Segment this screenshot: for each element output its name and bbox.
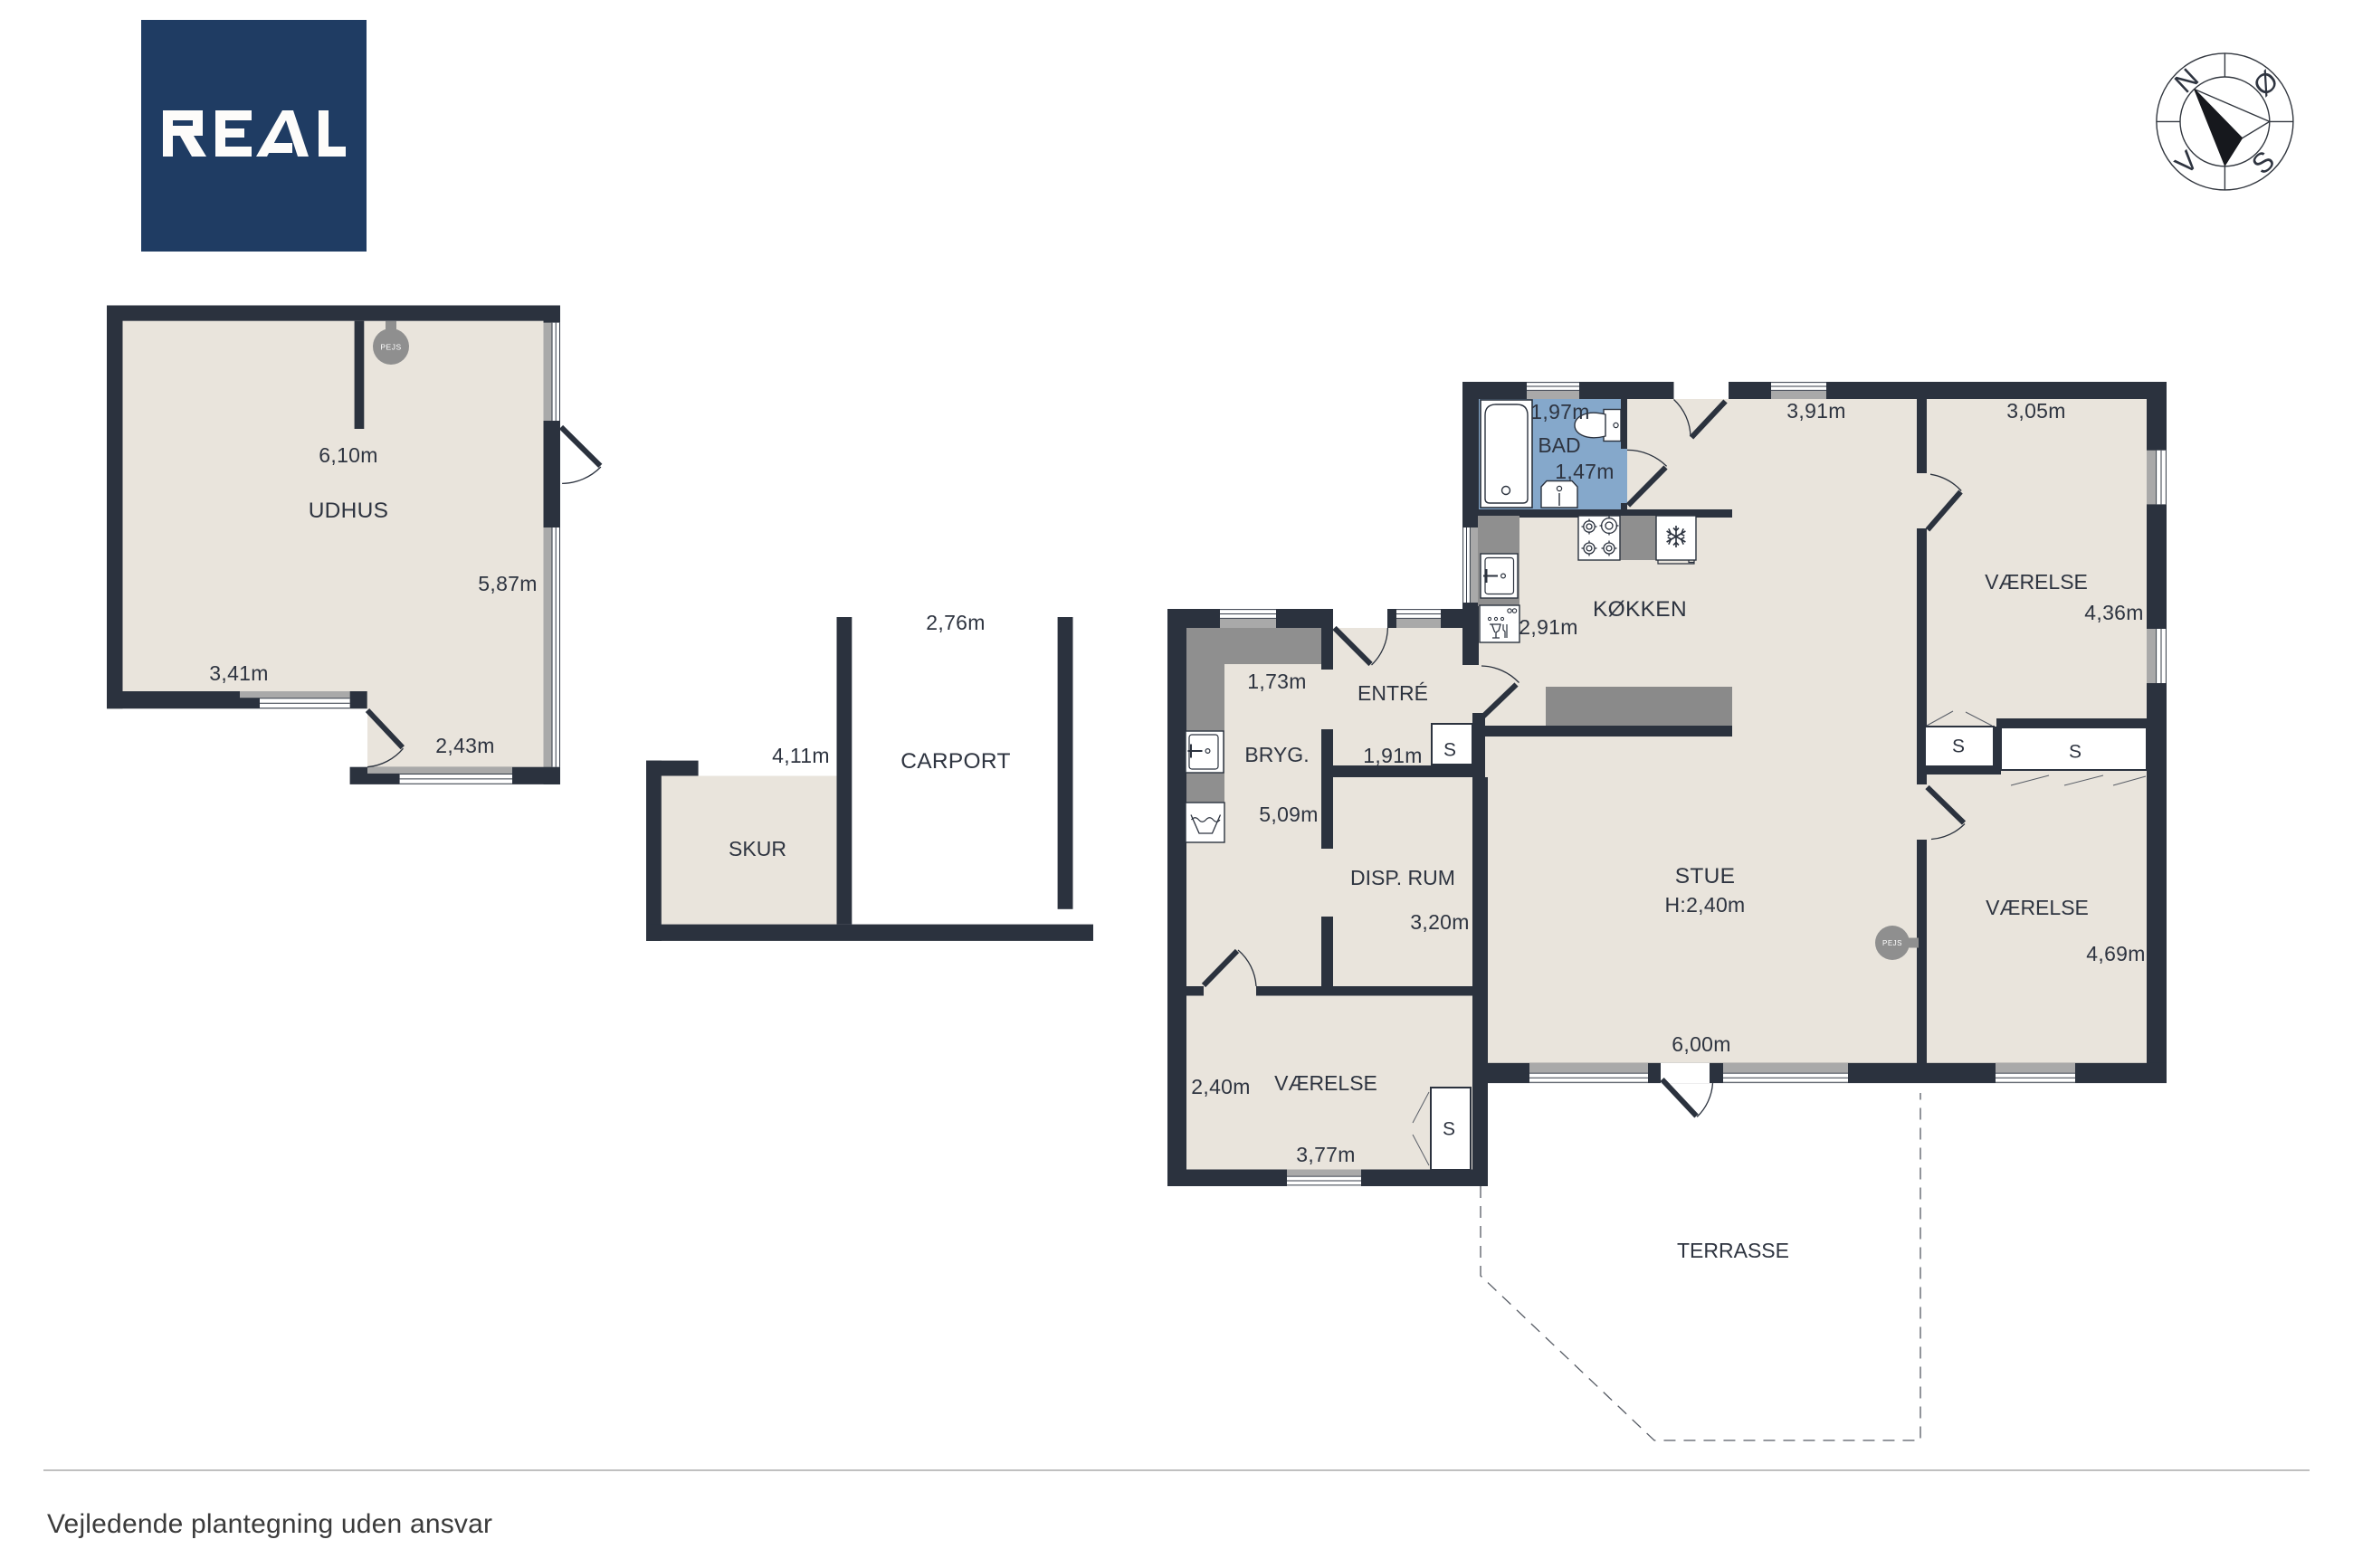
svg-text:4,36m: 4,36m bbox=[2084, 601, 2143, 624]
svg-text:S: S bbox=[1952, 736, 1965, 757]
svg-text:2,43m: 2,43m bbox=[435, 734, 494, 757]
svg-text:BAD: BAD bbox=[1538, 433, 1580, 457]
svg-text:VÆRELSE: VÆRELSE bbox=[1274, 1071, 1377, 1095]
svg-text:KØKKEN: KØKKEN bbox=[1593, 597, 1687, 622]
svg-text:CARPORT: CARPORT bbox=[900, 749, 1010, 774]
svg-text:5,09m: 5,09m bbox=[1259, 803, 1318, 826]
svg-text:BRYG.: BRYG. bbox=[1244, 743, 1309, 766]
svg-text:4,69m: 4,69m bbox=[2086, 942, 2145, 965]
svg-text:STUE: STUE bbox=[1675, 864, 1736, 889]
svg-text:S: S bbox=[2069, 742, 2081, 763]
svg-text:4,11m: 4,11m bbox=[772, 744, 830, 767]
svg-text:3,05m: 3,05m bbox=[2006, 399, 2065, 423]
svg-text:PEJS: PEJS bbox=[1882, 939, 1902, 947]
svg-text:1,47m: 1,47m bbox=[1555, 460, 1614, 483]
svg-text:ENTRÉ: ENTRÉ bbox=[1357, 681, 1428, 705]
svg-text:S: S bbox=[1443, 740, 1456, 761]
svg-text:H:2,40m: H:2,40m bbox=[1664, 893, 1745, 917]
svg-text:DISP. RUM: DISP. RUM bbox=[1350, 866, 1455, 889]
svg-text:2,40m: 2,40m bbox=[1191, 1075, 1250, 1098]
svg-text:1,91m: 1,91m bbox=[1363, 744, 1422, 767]
svg-text:UDHUS: UDHUS bbox=[309, 499, 389, 523]
svg-text:1,97m: 1,97m bbox=[1530, 400, 1589, 423]
svg-text:2,91m: 2,91m bbox=[1519, 615, 1577, 639]
svg-text:6,10m: 6,10m bbox=[319, 443, 377, 467]
svg-text:SKUR: SKUR bbox=[729, 837, 786, 860]
svg-text:Vejledende plantegning uden an: Vejledende plantegning uden ansvar bbox=[47, 1509, 492, 1539]
svg-text:5,87m: 5,87m bbox=[478, 572, 537, 595]
svg-text:1,73m: 1,73m bbox=[1247, 670, 1306, 693]
svg-text:3,41m: 3,41m bbox=[209, 661, 268, 685]
svg-text:TERRASSE: TERRASSE bbox=[1677, 1239, 1789, 1262]
svg-text:VÆRELSE: VÆRELSE bbox=[1986, 896, 2089, 919]
svg-text:S: S bbox=[1443, 1119, 1455, 1140]
svg-text:2,76m: 2,76m bbox=[926, 611, 985, 634]
svg-text:3,77m: 3,77m bbox=[1296, 1143, 1355, 1166]
svg-text:6,00m: 6,00m bbox=[1672, 1032, 1730, 1056]
svg-text:VÆRELSE: VÆRELSE bbox=[1985, 570, 2088, 594]
svg-text:PEJS: PEJS bbox=[380, 343, 401, 352]
svg-text:3,20m: 3,20m bbox=[1410, 910, 1469, 934]
svg-text:3,91m: 3,91m bbox=[1786, 399, 1845, 423]
